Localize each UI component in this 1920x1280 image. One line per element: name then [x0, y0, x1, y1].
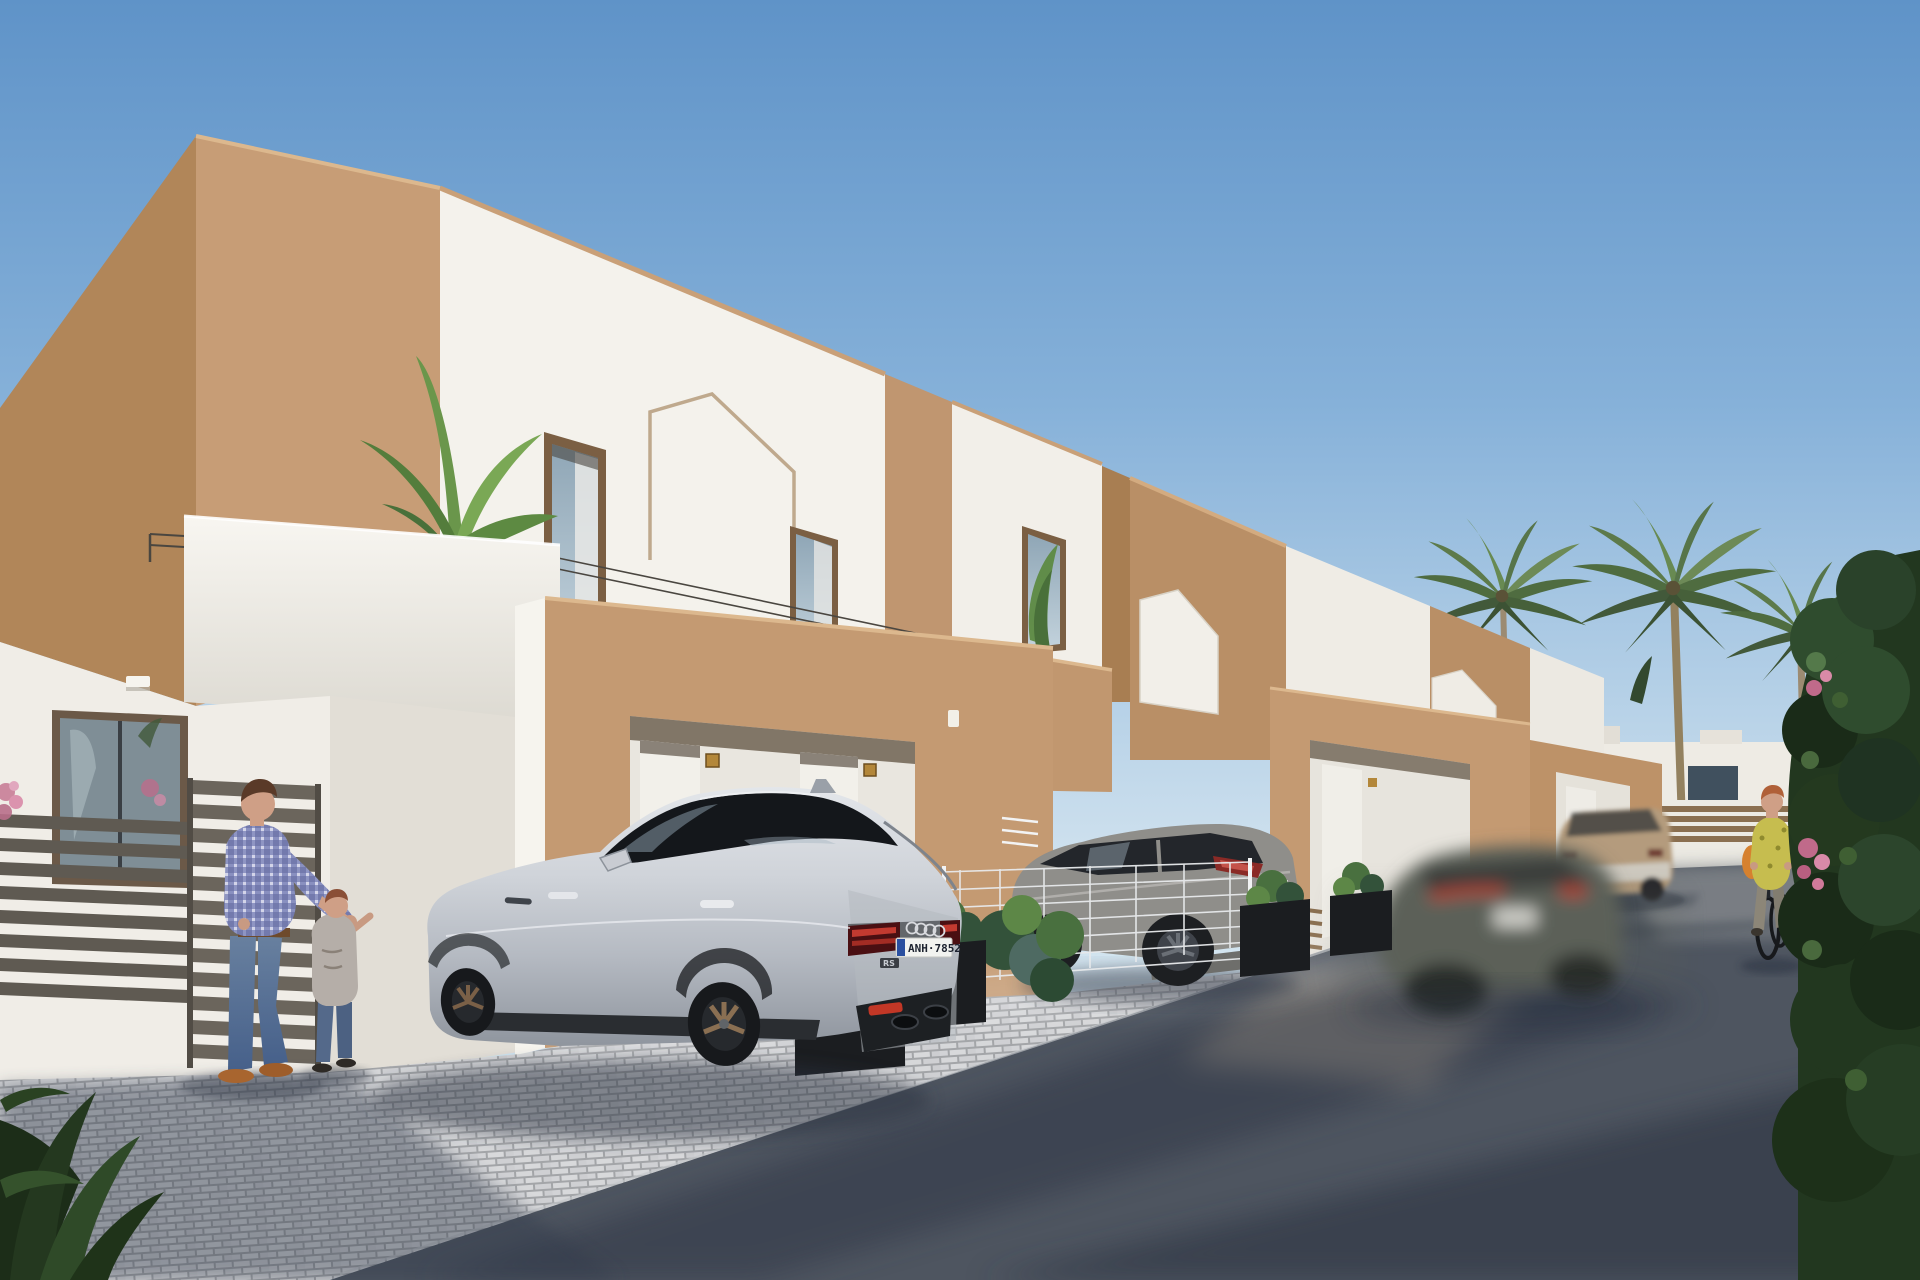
plate-number: ANH·7852	[908, 942, 961, 955]
door-handle	[548, 892, 578, 899]
house-number-plaque-icon	[864, 764, 876, 776]
planter-box	[1240, 899, 1310, 977]
rs-badge: RS	[880, 958, 899, 968]
wall-lamp	[126, 676, 150, 687]
villa-street-render: ANH·7852 RS	[0, 0, 1920, 1280]
porch-lamp	[948, 710, 959, 727]
rs-badge-text: RS	[883, 959, 895, 968]
balcony-parapet	[184, 516, 560, 728]
plate-eu-strip	[897, 939, 905, 956]
sliding-glass-door	[52, 710, 188, 888]
license-plate: ANH·7852	[896, 938, 961, 957]
house2-window	[1022, 526, 1066, 654]
car-shadow	[370, 1060, 930, 1140]
door-handle	[700, 900, 734, 908]
planter-box	[1330, 890, 1392, 956]
suv-wheel	[1142, 914, 1214, 986]
house-number-plaque-icon	[706, 754, 719, 767]
child-shirt	[312, 914, 358, 1006]
house-number-plaque-icon	[1368, 778, 1377, 787]
house3-brown-side	[1102, 466, 1130, 702]
render-canvas: ANH·7852 RS	[0, 0, 1920, 1280]
